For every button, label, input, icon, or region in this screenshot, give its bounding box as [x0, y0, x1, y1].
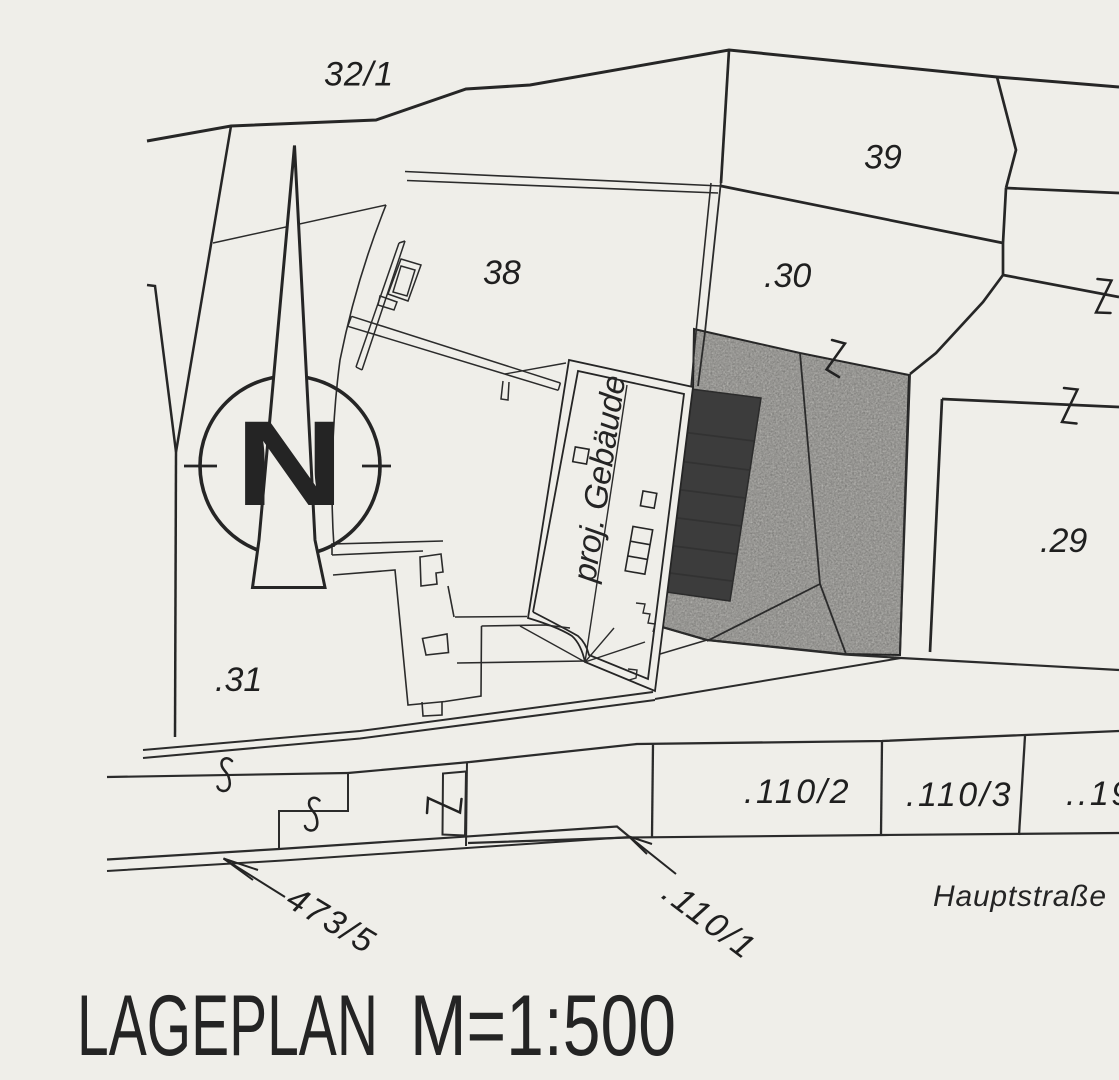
- svg-text:.110/2: .110/2: [744, 773, 851, 811]
- svg-text:M=1:500: M=1:500: [410, 978, 676, 1074]
- svg-text:.31: .31: [215, 661, 262, 699]
- svg-text:.30: .30: [764, 257, 811, 295]
- svg-text:.29: .29: [1040, 522, 1087, 560]
- svg-text:LAGEPLAN: LAGEPLAN: [77, 978, 378, 1074]
- svg-text:39: 39: [864, 139, 902, 177]
- svg-text:..19: ..19: [1066, 775, 1119, 813]
- svg-text:.110/3: .110/3: [906, 776, 1013, 814]
- svg-text:32/1: 32/1: [324, 56, 394, 94]
- svg-text:N: N: [235, 396, 344, 531]
- svg-text:38: 38: [483, 254, 521, 292]
- svg-text:Hauptstraße: Hauptstraße: [933, 880, 1107, 913]
